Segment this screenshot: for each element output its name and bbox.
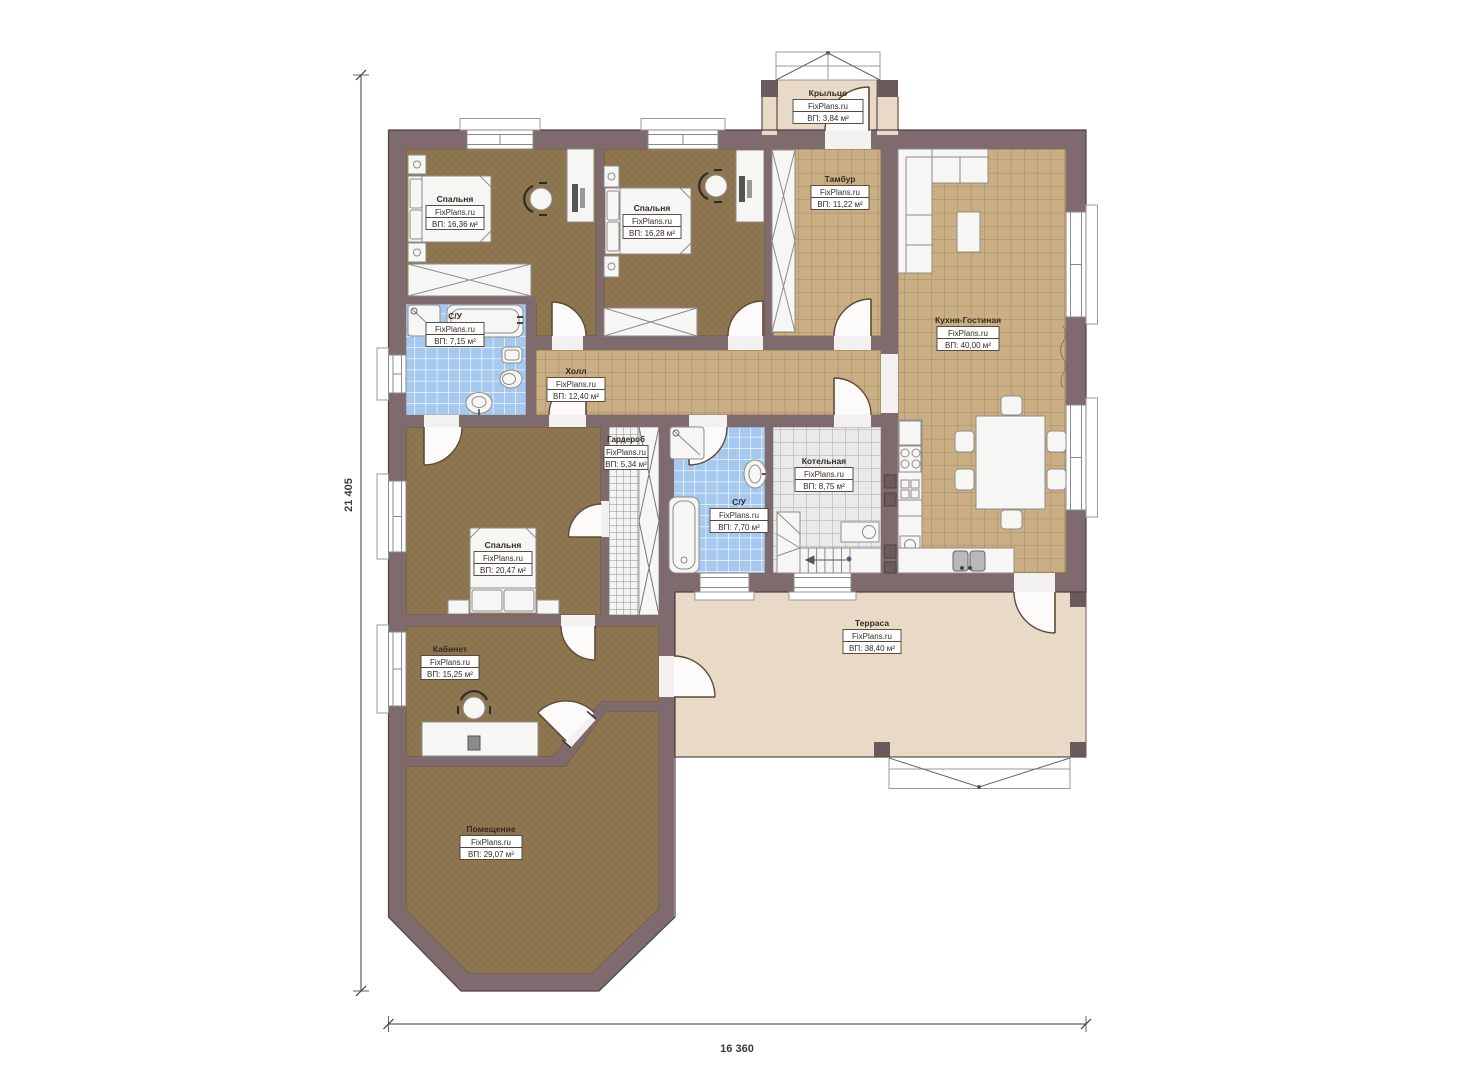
svg-text:FixPlans.ru: FixPlans.ru bbox=[948, 329, 988, 338]
svg-text:ВП: 40,00 м²: ВП: 40,00 м² bbox=[945, 341, 991, 350]
svg-text:21 405: 21 405 bbox=[343, 478, 355, 512]
svg-text:Гардероб: Гардероб bbox=[607, 435, 645, 444]
svg-text:ВП: 29,07 м²: ВП: 29,07 м² bbox=[468, 850, 514, 859]
svg-text:Кабинет: Кабинет bbox=[433, 644, 467, 654]
svg-text:ВП: 15,25 м²: ВП: 15,25 м² bbox=[427, 670, 473, 679]
svg-text:FixPlans.ru: FixPlans.ru bbox=[632, 217, 672, 226]
svg-text:FixPlans.ru: FixPlans.ru bbox=[808, 102, 848, 111]
svg-text:Спальня: Спальня bbox=[437, 194, 474, 204]
svg-text:Тамбур: Тамбур bbox=[825, 174, 856, 184]
svg-text:FixPlans.ru: FixPlans.ru bbox=[556, 380, 596, 389]
svg-text:ВП: 11,22 м²: ВП: 11,22 м² bbox=[817, 200, 863, 209]
svg-text:С/У: С/У bbox=[732, 497, 747, 507]
svg-text:ВП: 16,28 м²: ВП: 16,28 м² bbox=[629, 229, 675, 238]
svg-text:FixPlans.ru: FixPlans.ru bbox=[804, 470, 844, 479]
svg-text:FixPlans.ru: FixPlans.ru bbox=[471, 838, 511, 847]
svg-text:С/У: С/У bbox=[448, 311, 463, 321]
svg-text:ВП: 16,36 м²: ВП: 16,36 м² bbox=[432, 220, 478, 229]
svg-text:FixPlans.ru: FixPlans.ru bbox=[852, 632, 892, 641]
svg-text:ВП: 7,15 м²: ВП: 7,15 м² bbox=[434, 337, 476, 346]
svg-text:Спальня: Спальня bbox=[485, 540, 522, 550]
svg-text:ВП: 3,84 м²: ВП: 3,84 м² bbox=[807, 114, 849, 123]
svg-text:ВП: 8,75 м²: ВП: 8,75 м² bbox=[803, 482, 845, 491]
svg-text:Котельная: Котельная bbox=[802, 456, 847, 466]
svg-text:ВП: 20,47 м²: ВП: 20,47 м² bbox=[480, 566, 526, 575]
svg-text:FixPlans.ru: FixPlans.ru bbox=[719, 511, 759, 520]
svg-text:Помещение: Помещение bbox=[466, 824, 515, 834]
svg-text:FixPlans.ru: FixPlans.ru bbox=[435, 208, 475, 217]
svg-text:ВП: 7,70 м²: ВП: 7,70 м² bbox=[718, 523, 760, 532]
svg-text:Холл: Холл bbox=[565, 366, 586, 376]
svg-text:FixPlans.ru: FixPlans.ru bbox=[435, 325, 475, 334]
svg-text:ВП: 38,40 м²: ВП: 38,40 м² bbox=[849, 644, 895, 653]
svg-text:16 360: 16 360 bbox=[720, 1043, 754, 1055]
svg-text:Спальня: Спальня bbox=[634, 203, 671, 213]
svg-text:FixPlans.ru: FixPlans.ru bbox=[430, 658, 470, 667]
svg-text:Терраса: Терраса bbox=[855, 618, 889, 628]
svg-text:FixPlans.ru: FixPlans.ru bbox=[483, 554, 523, 563]
svg-text:Кухня-Гостиная: Кухня-Гостиная bbox=[935, 315, 1001, 325]
svg-text:FixPlans.ru: FixPlans.ru bbox=[820, 188, 860, 197]
svg-text:ВП: 12,40 м²: ВП: 12,40 м² bbox=[553, 392, 599, 401]
svg-text:ВП: 5,34 м²: ВП: 5,34 м² bbox=[605, 460, 647, 469]
svg-text:Крыльцо: Крыльцо bbox=[809, 88, 848, 98]
svg-text:FixPlans.ru: FixPlans.ru bbox=[606, 448, 646, 457]
